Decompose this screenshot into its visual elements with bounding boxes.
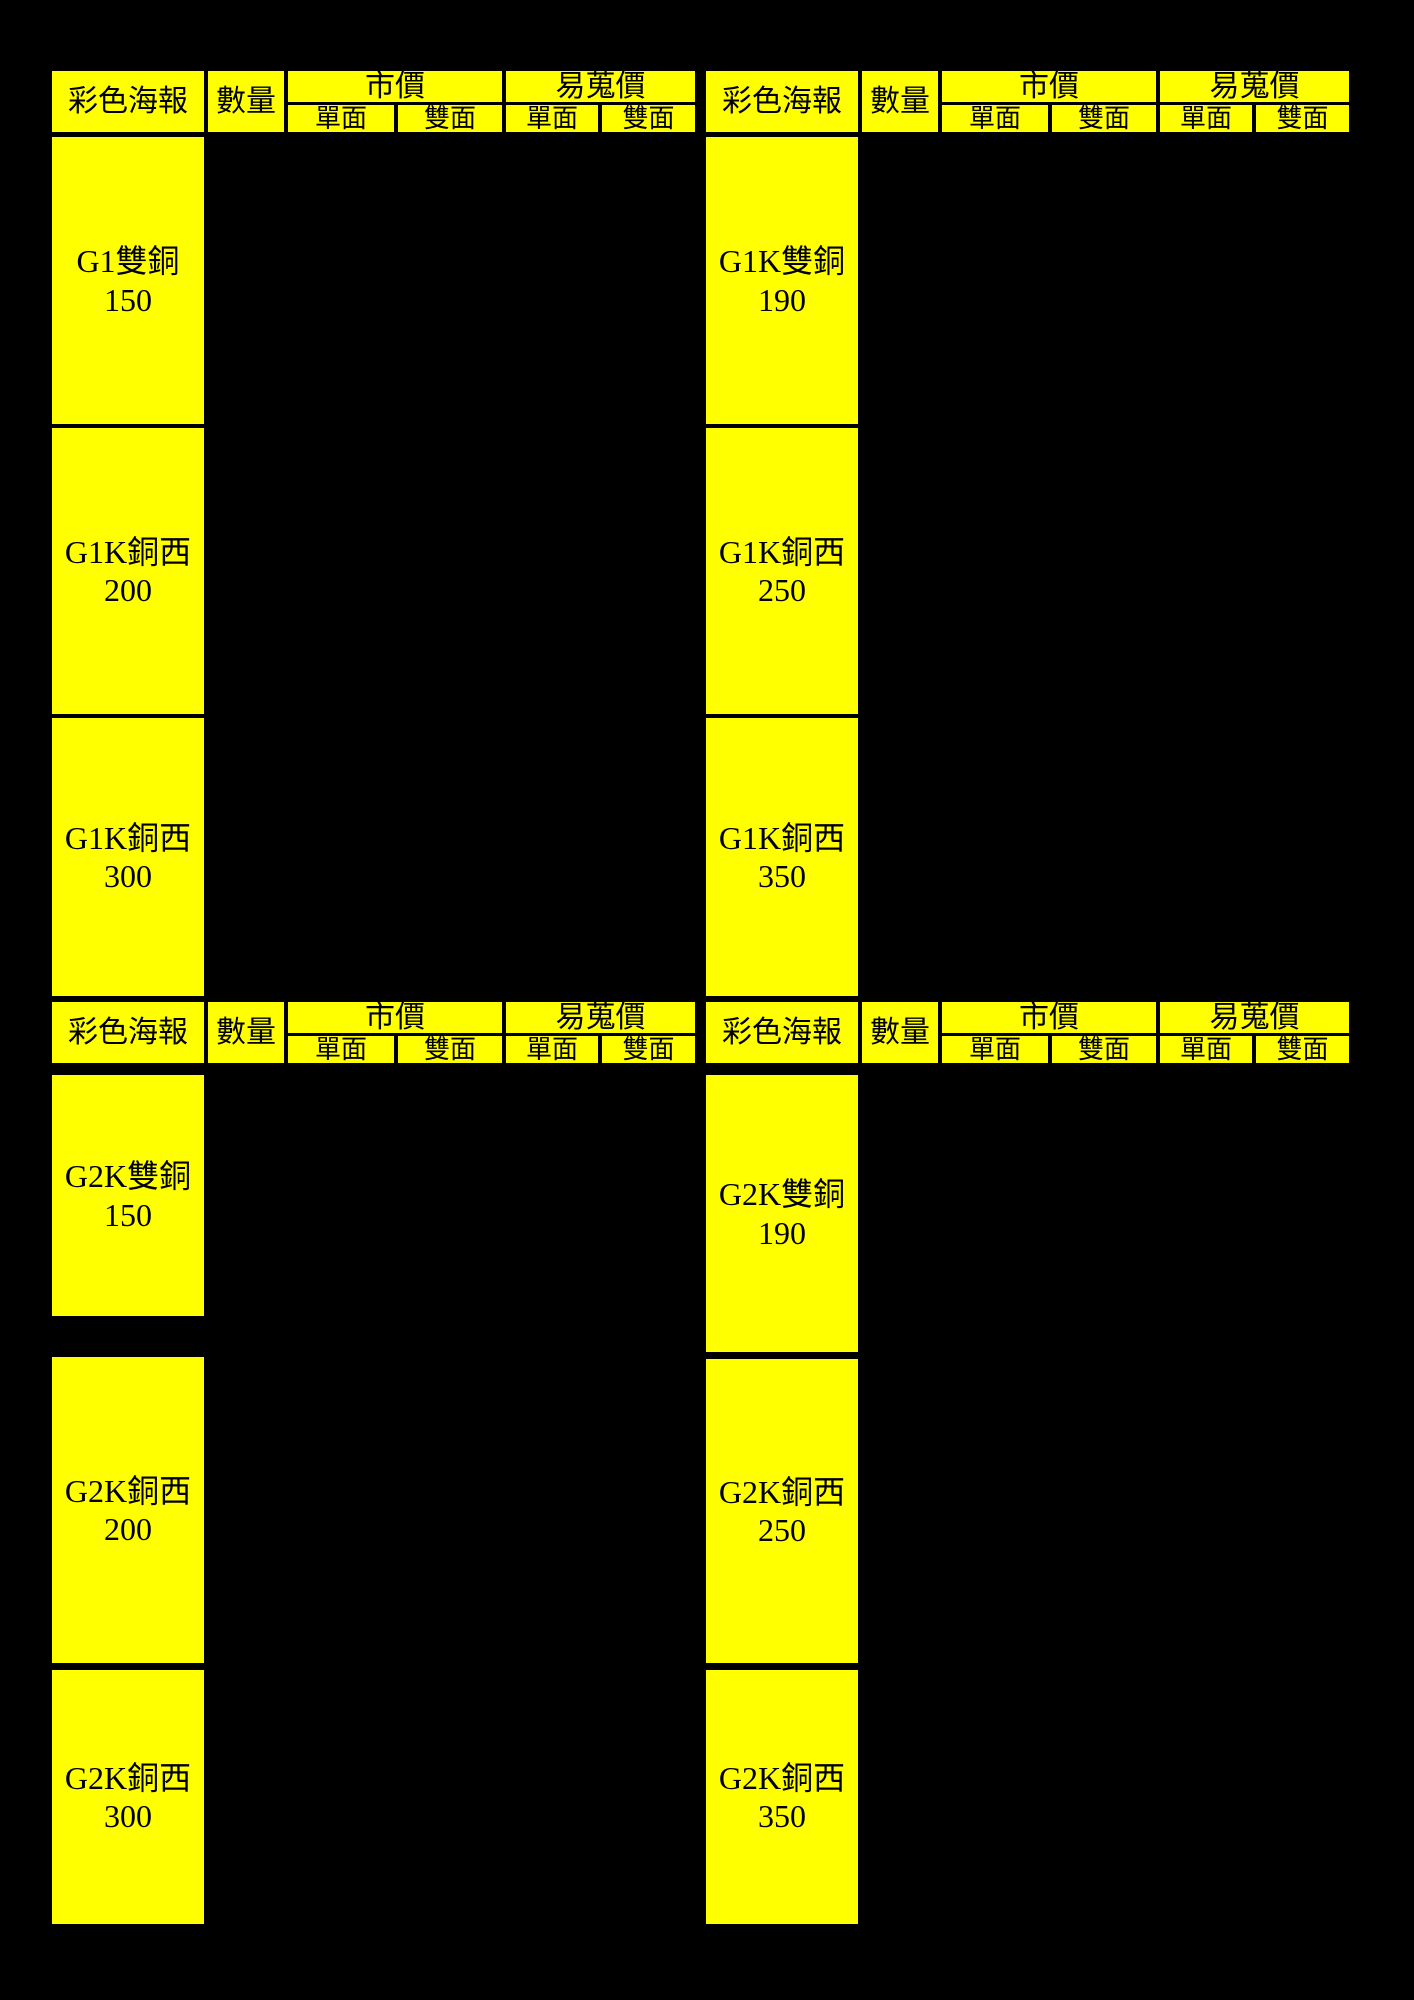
row-label-cell: G1K銅西 300 — [52, 718, 204, 996]
row-label-cell: G1K銅西 200 — [52, 428, 204, 714]
row-label-value: 150 — [104, 281, 152, 319]
header-cell-poster: 彩色海報 — [706, 71, 858, 132]
row-label-value: 300 — [104, 857, 152, 895]
row-label-cell: G2K雙銅 150 — [52, 1075, 204, 1316]
header-cell-easy-price: 易蒐價 — [1160, 1002, 1349, 1033]
row-label-cell: G2K銅西 200 — [52, 1357, 204, 1663]
row-label-value: 200 — [104, 571, 152, 609]
row-label-name: G1K銅西 — [65, 533, 191, 571]
header-cell-easy-double: 雙面 — [602, 1036, 695, 1063]
row-label-cell: G2K銅西 300 — [52, 1670, 204, 1924]
row-label-value: 250 — [758, 571, 806, 609]
row-label-name: G2K銅西 — [719, 1473, 845, 1511]
table-header: 彩色海報 數量 市價 易蒐價 單面 雙面 單面 雙面 — [706, 1002, 1349, 1063]
row-label-name: G1K雙銅 — [719, 242, 845, 280]
row-label-cell: G2K銅西 250 — [706, 1359, 858, 1663]
row-label-name: G2K雙銅 — [65, 1157, 191, 1195]
header-cell-easy-price: 易蒐價 — [506, 1002, 695, 1033]
header-cell-poster: 彩色海報 — [52, 1002, 204, 1063]
header-cell-easy-price: 易蒐價 — [1160, 71, 1349, 102]
row-label-name: G2K銅西 — [719, 1759, 845, 1797]
header-cell-market-single: 單面 — [942, 1036, 1048, 1063]
header-cell-easy-single: 單面 — [506, 105, 598, 132]
row-label-name: G1K銅西 — [719, 533, 845, 571]
row-label-value: 300 — [104, 1797, 152, 1835]
row-label-value: 350 — [758, 857, 806, 895]
row-label-cell: G1K雙銅 190 — [706, 137, 858, 424]
header-cell-easy-single: 單面 — [1160, 1036, 1252, 1063]
row-label-value: 190 — [758, 1214, 806, 1252]
table-header: 彩色海報 數量 市價 易蒐價 單面 雙面 單面 雙面 — [52, 71, 695, 132]
header-cell-quantity: 數量 — [208, 1002, 284, 1063]
row-label-cell: G2K雙銅 190 — [706, 1075, 858, 1352]
table-header: 彩色海報 數量 市價 易蒐價 單面 雙面 單面 雙面 — [706, 71, 1349, 132]
header-cell-easy-single: 單面 — [1160, 105, 1252, 132]
row-label-cell: G1K銅西 250 — [706, 428, 858, 714]
row-label-cell: G1K銅西 350 — [706, 718, 858, 996]
row-label-value: 150 — [104, 1196, 152, 1234]
header-cell-market-double: 雙面 — [1052, 105, 1156, 132]
header-cell-market-double: 雙面 — [398, 105, 502, 132]
header-cell-market-single: 單面 — [288, 1036, 394, 1063]
header-cell-market-single: 單面 — [942, 105, 1048, 132]
row-label-value: 190 — [758, 281, 806, 319]
header-cell-easy-double: 雙面 — [1256, 105, 1349, 132]
row-label-name: G2K銅西 — [65, 1472, 191, 1510]
header-cell-easy-double: 雙面 — [1256, 1036, 1349, 1063]
header-cell-quantity: 數量 — [862, 1002, 938, 1063]
header-cell-market-double: 雙面 — [398, 1036, 502, 1063]
header-cell-poster: 彩色海報 — [52, 71, 204, 132]
header-cell-easy-single: 單面 — [506, 1036, 598, 1063]
header-cell-market-price: 市價 — [942, 1002, 1156, 1033]
row-label-name: G1K銅西 — [719, 819, 845, 857]
header-cell-quantity: 數量 — [862, 71, 938, 132]
row-label-value: 250 — [758, 1511, 806, 1549]
row-label-cell: G1雙銅 150 — [52, 137, 204, 424]
header-cell-market-double: 雙面 — [1052, 1036, 1156, 1063]
header-cell-market-price: 市價 — [288, 1002, 502, 1033]
header-cell-market-price: 市價 — [288, 71, 502, 102]
row-label-value: 200 — [104, 1510, 152, 1548]
row-label-name: G1雙銅 — [76, 242, 179, 280]
row-label-value: 350 — [758, 1797, 806, 1835]
row-label-name: G2K銅西 — [65, 1759, 191, 1797]
header-cell-quantity: 數量 — [208, 71, 284, 132]
header-cell-poster: 彩色海報 — [706, 1002, 858, 1063]
table-header: 彩色海報 數量 市價 易蒐價 單面 雙面 單面 雙面 — [52, 1002, 695, 1063]
poster-price-sheet: 彩色海報 數量 市價 易蒐價 單面 雙面 單面 雙面 G1雙銅 150 G1K銅… — [0, 0, 1414, 2000]
row-label-name: G2K雙銅 — [719, 1175, 845, 1213]
header-cell-easy-double: 雙面 — [602, 105, 695, 132]
header-cell-market-price: 市價 — [942, 71, 1156, 102]
row-label-name: G1K銅西 — [65, 819, 191, 857]
row-label-cell: G2K銅西 350 — [706, 1670, 858, 1924]
header-cell-market-single: 單面 — [288, 105, 394, 132]
header-cell-easy-price: 易蒐價 — [506, 71, 695, 102]
